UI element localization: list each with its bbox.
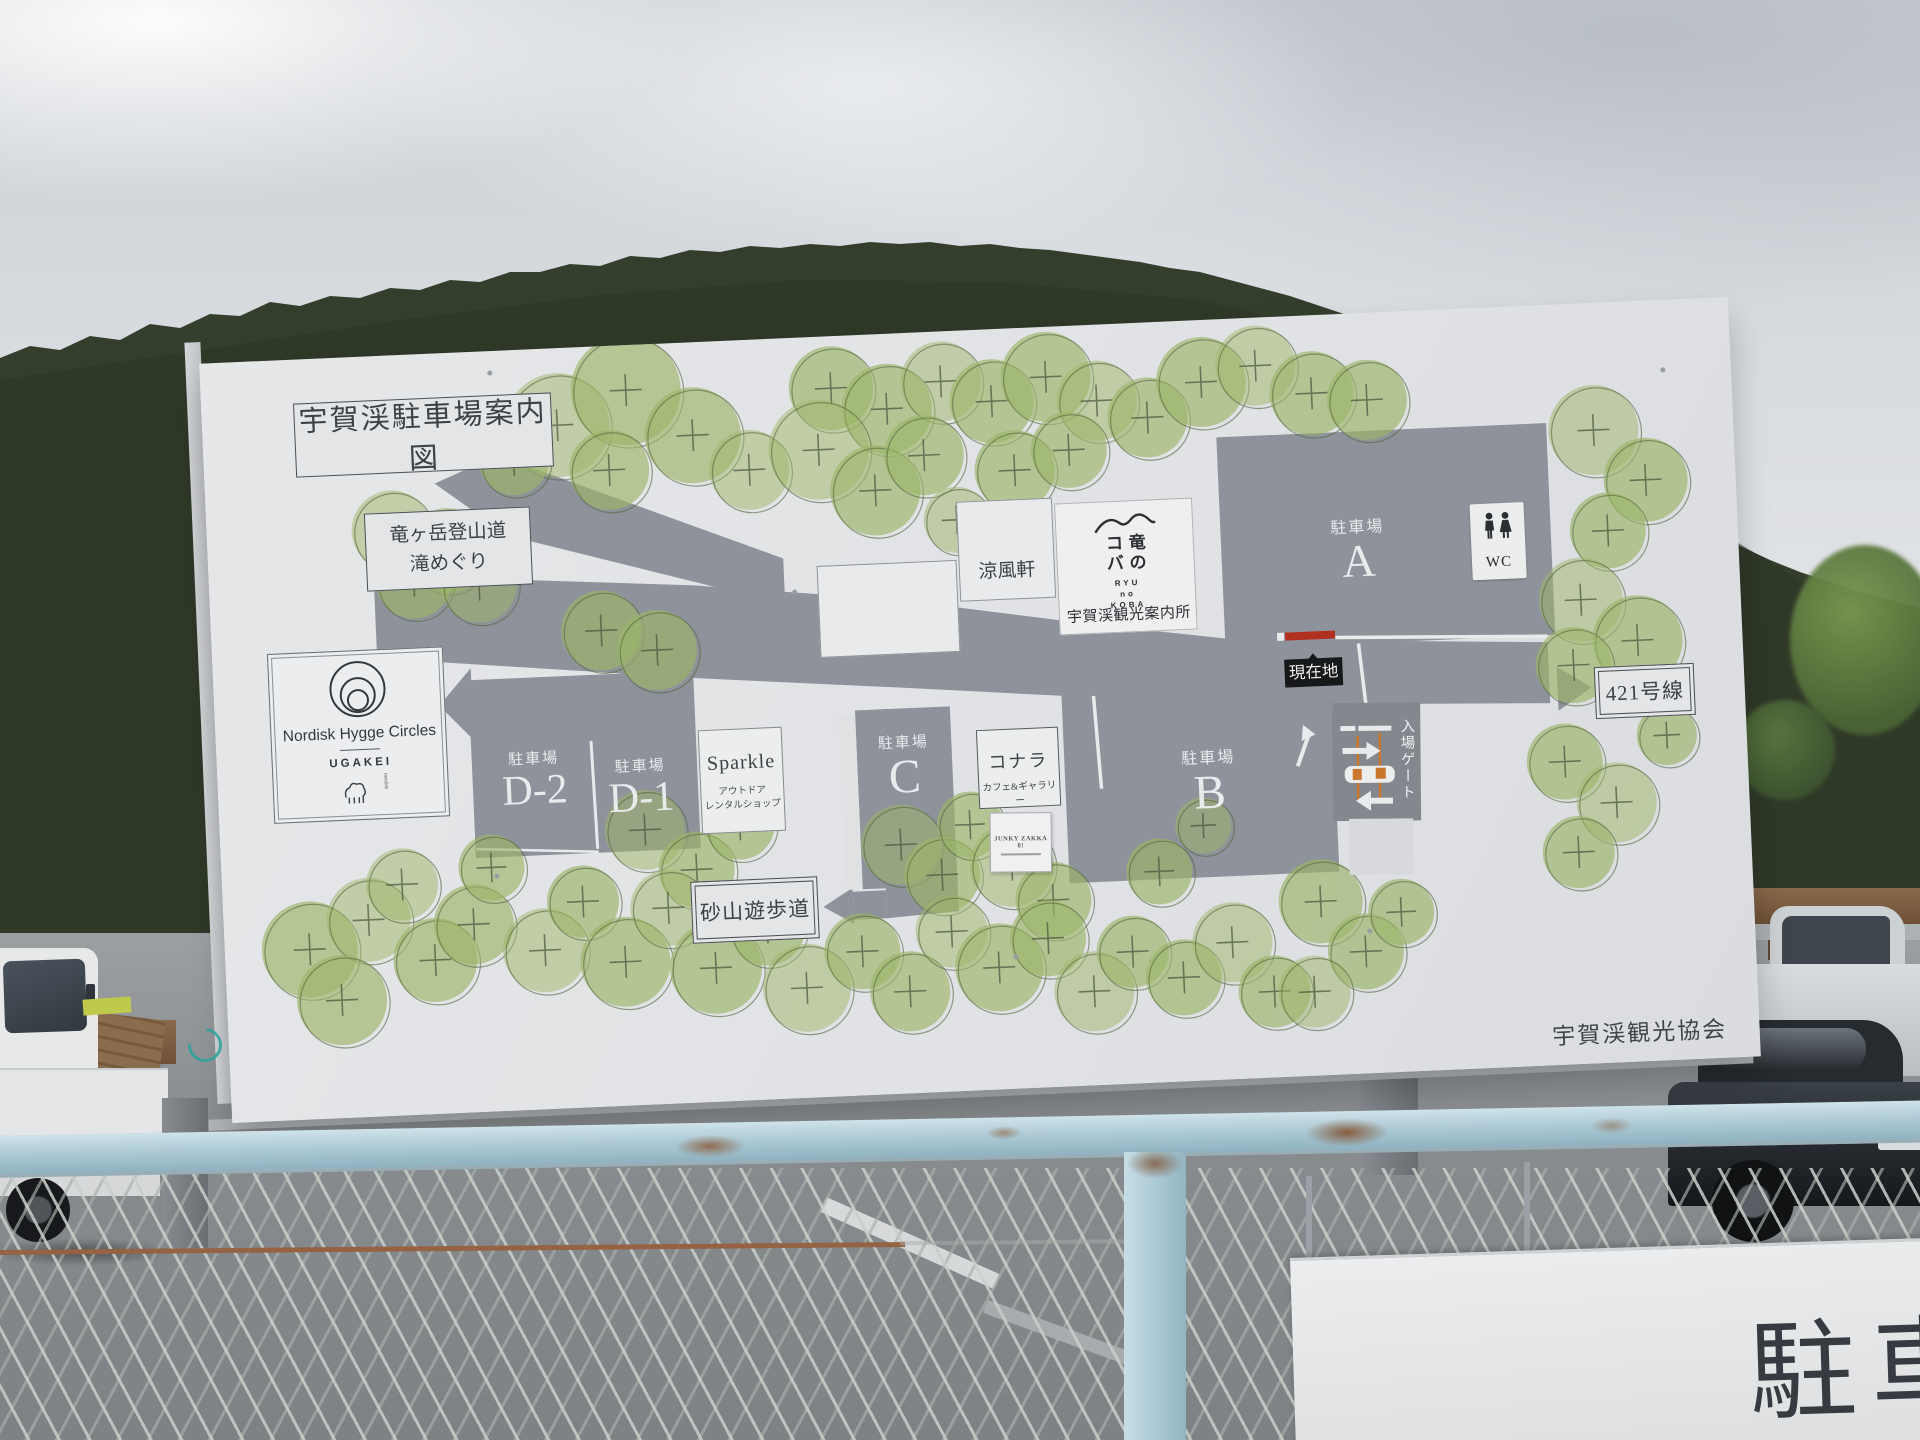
ryu-col-left: コバ	[1105, 534, 1125, 574]
toilet-sign: WC	[1470, 502, 1527, 580]
gate-exit-lane	[1349, 818, 1413, 875]
roadside-bush	[1735, 700, 1835, 800]
sparkle-shop-box: Sparkle アウトドア レンタルショップ	[698, 727, 786, 835]
konara-cafe-box: コナラ カフェ&ギャラリー	[976, 727, 1061, 810]
nordisk-hygge-circles-box: Nordisk Hygge Circles UGAKEI nordisk	[267, 646, 450, 824]
ryofuken-building: 涼風軒	[956, 498, 1056, 602]
junky-zakka-box: JUNKY ZAKKA 8!	[990, 812, 1053, 873]
nordisk-name: Nordisk Hygge Circles	[271, 721, 448, 747]
konara-name: コナラ	[978, 746, 1059, 775]
lot-d2-label: 駐車場 D-2	[478, 745, 591, 815]
sparkle-name: Sparkle	[700, 750, 783, 777]
photo-scene: 宇賀渓駐車場案内図 竜ヶ岳登山道 滝めぐり Nordisk Hygge Circ…	[0, 0, 1920, 1440]
entrance-gate-diagram: 入場ゲート	[1332, 702, 1421, 821]
fence-parking-sign: 駐車	[1290, 1236, 1920, 1440]
wc-label: WC	[1472, 553, 1527, 572]
car-window	[1782, 916, 1890, 964]
junky-tagline	[1001, 853, 1041, 855]
sunayama-trail-label: 砂山遊歩道	[690, 876, 820, 943]
ryunokoba-info-box: 竜の コバ RYU no KOBA 宇賀渓観光案内所	[1054, 498, 1198, 636]
truck-bed	[0, 1068, 168, 1142]
truck-windshield	[3, 959, 87, 1034]
trail-line2: 滝めぐり	[390, 546, 508, 581]
ryofuken-label: 涼風軒	[959, 554, 1054, 585]
divider	[340, 748, 380, 751]
truck-cargo	[83, 996, 132, 1015]
lot-d1-label: 駐車場 D-1	[585, 752, 698, 822]
gate-label: 入場ゲート	[1396, 718, 1418, 801]
nordisk-circles-logo	[326, 658, 389, 723]
lot-c-label: 駐車場 C	[853, 729, 956, 805]
wc-man-woman-icon	[1479, 510, 1516, 542]
route-421-label: 421号線	[1594, 663, 1696, 719]
polar-bear-icon	[341, 777, 370, 808]
lot-b-label: 駐車場 B	[1152, 742, 1267, 821]
map-title: 宇賀渓駐車場案内図	[293, 392, 554, 477]
fence-parking-sign-text: 駐車	[1746, 1279, 1920, 1440]
current-location-marker: 現在地	[1284, 657, 1343, 688]
parking-map-signboard: 宇賀渓駐車場案内図 竜ヶ岳登山道 滝めぐり Nordisk Hygge Circ…	[199, 297, 1761, 1123]
ryu-col-right: 竜の	[1127, 533, 1147, 573]
fence-post	[1124, 1152, 1186, 1440]
ryunokoba-vertical-name: 竜の コバ	[1057, 530, 1197, 575]
building-outline	[817, 560, 961, 658]
nordisk-sub: UGAKEI	[273, 753, 449, 773]
trail-label-box: 竜ヶ岳登山道 滝めぐり	[364, 506, 533, 591]
nordisk-brand: nordisk	[382, 773, 389, 789]
trail-line1: 竜ヶ岳登山道	[389, 516, 507, 551]
konara-sub: カフェ&ギャラリー	[979, 777, 1060, 808]
lot-a-label: 駐車場 A	[1302, 511, 1415, 588]
